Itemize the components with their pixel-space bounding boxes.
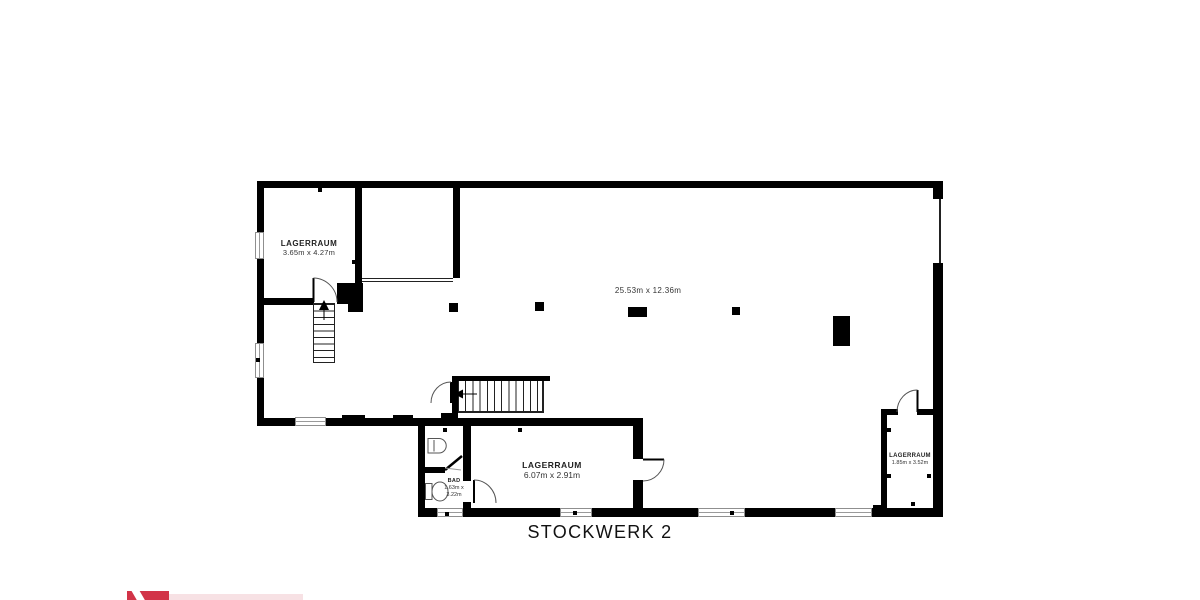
room-dims-bathroom-line2: 3.22m (446, 493, 461, 499)
room-dims-bathroom-line1: 1.63m x (444, 486, 464, 492)
sink-icon (428, 439, 446, 454)
room-label-bathroom: BAD (448, 479, 461, 485)
brand-logo-band (169, 594, 303, 600)
doors-and-fixtures-layer (0, 0, 1200, 600)
room-dims-storage-right: 1.85m x 3.52m (892, 461, 928, 467)
toilet-tank-icon (426, 484, 433, 500)
room-label-storage-bottom: LAGERRAUM (522, 461, 582, 470)
floorplan-canvas: LAGERRAUM 3.65m x 4.27m 25.53m x 12.36m … (0, 0, 1200, 600)
door-arc-storage-bottom (643, 460, 664, 482)
door-arc-storage-right (897, 390, 918, 412)
door-arc-stair (431, 382, 451, 403)
room-dims-storage-top-left: 3.65m x 4.27m (283, 249, 335, 257)
door-arc-bathroom-storage (474, 480, 496, 503)
brand-logo-slash (131, 591, 146, 600)
brand-logo-icon (127, 591, 169, 600)
room-label-storage-right: LAGERRAUM (889, 453, 931, 459)
door-arc-storage-top-left (314, 278, 338, 302)
floor-title: STOCKWERK 2 (528, 523, 673, 541)
stair-arrow-up-icon (319, 300, 329, 310)
stair-arrow-left-icon (454, 390, 463, 399)
room-dims-storage-bottom: 6.07m x 2.91m (524, 471, 580, 480)
room-label-storage-top-left: LAGERRAUM (281, 240, 338, 248)
hall-dimensions-label: 25.53m x 12.36m (615, 287, 681, 295)
